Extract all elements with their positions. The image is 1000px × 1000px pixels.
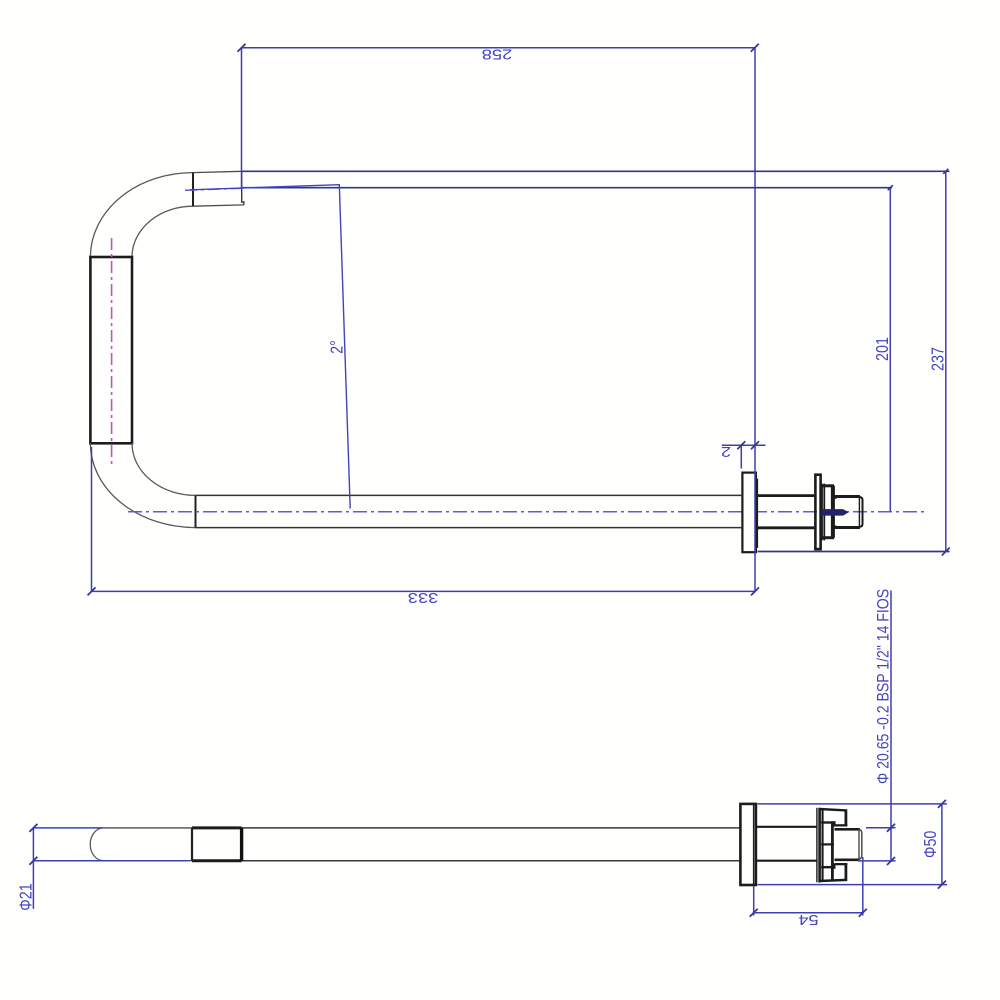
svg-text:258: 258	[482, 46, 513, 63]
svg-text:201: 201	[874, 337, 893, 361]
svg-text:333: 333	[408, 590, 439, 607]
svg-text:54: 54	[798, 912, 818, 929]
svg-text:237: 237	[929, 347, 948, 371]
svg-text:2°: 2°	[328, 340, 347, 354]
svg-text:Φ50: Φ50	[922, 831, 941, 858]
svg-text:2: 2	[721, 443, 731, 460]
svg-text:Φ21: Φ21	[17, 883, 36, 910]
svg-text:Φ 20.65 -0.2 BSP 1/2" 14 FIOS: Φ 20.65 -0.2 BSP 1/2" 14 FIOS	[874, 589, 893, 784]
